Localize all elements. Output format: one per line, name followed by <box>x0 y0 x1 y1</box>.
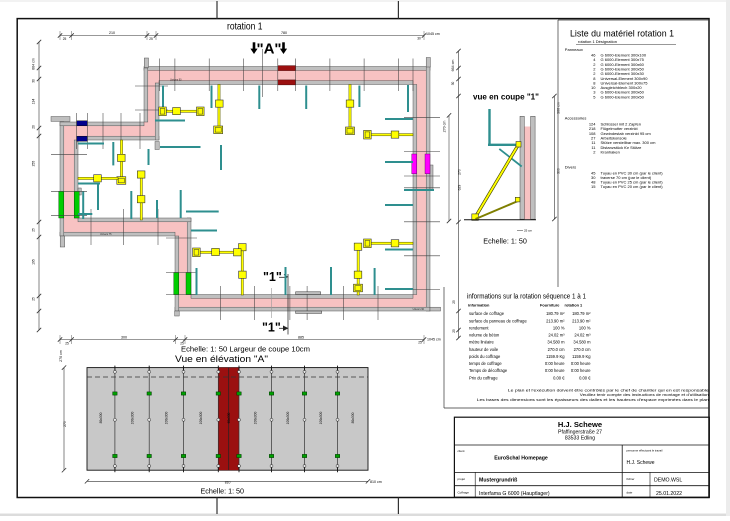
svg-text:180.79 m²: 180.79 m² <box>572 311 591 316</box>
svg-text:100x300: 100x300 <box>199 412 203 425</box>
svg-text:1045 cm: 1045 cm <box>426 32 440 36</box>
svg-text:270: 270 <box>63 421 67 427</box>
svg-text:information: information <box>468 303 490 308</box>
svg-text:885: 885 <box>298 335 304 339</box>
svg-text:270: 270 <box>458 169 462 175</box>
svg-text:270.0 cm: 270.0 cm <box>574 347 591 352</box>
svg-text:rendement: rendement <box>469 325 489 330</box>
svg-text:1159.9 Kg: 1159.9 Kg <box>546 354 565 359</box>
svg-text:25: 25 <box>452 329 456 333</box>
svg-text:Divers: Divers <box>565 165 576 170</box>
svg-text:0:00 heure: 0:00 heure <box>571 368 591 373</box>
svg-text:100x300: 100x300 <box>286 412 290 425</box>
svg-text:Mustergrundriß: Mustergrundriß <box>479 477 518 483</box>
svg-text:Temps de décoffrage: Temps de décoffrage <box>469 368 508 373</box>
svg-text:100x300: 100x300 <box>165 412 169 425</box>
svg-text:client: client <box>458 449 465 453</box>
svg-text:rotation 1: rotation 1 <box>565 303 584 308</box>
svg-text:195: 195 <box>32 259 36 265</box>
svg-text:rotation 1: rotation 1 <box>227 21 263 32</box>
svg-text:629: 629 <box>458 185 462 191</box>
svg-text:60x300: 60x300 <box>227 412 231 423</box>
svg-text:100x300: 100x300 <box>319 412 323 425</box>
svg-text:date: date <box>627 491 633 495</box>
svg-text:mètre linéaire: mètre linéaire <box>469 340 495 345</box>
svg-text:0.00 €: 0.00 € <box>553 375 565 380</box>
svg-text:Accessoires: Accessoires <box>565 115 587 120</box>
svg-text:270 cm: 270 cm <box>443 121 447 133</box>
svg-text:25: 25 <box>32 297 36 301</box>
svg-text:25: 25 <box>418 341 422 345</box>
svg-text:810 cm: 810 cm <box>370 480 382 484</box>
svg-text:24.02 m³: 24.02 m³ <box>574 333 591 338</box>
svg-text:fichier: fichier <box>627 477 635 481</box>
svg-text:Interfama G 6000 (Hauptlager): Interfama G 6000 (Hauptlager) <box>479 491 550 497</box>
svg-text:H.J. Schewe: H.J. Schewe <box>627 460 655 466</box>
svg-text:25: 25 <box>149 37 153 41</box>
svg-text:20: 20 <box>32 125 36 129</box>
svg-text:25: 25 <box>452 300 456 304</box>
svg-text:270.0 cm: 270.0 cm <box>548 347 565 352</box>
svg-text:180.79 m²: 180.79 m² <box>546 311 565 316</box>
svg-text:25 cm: 25 cm <box>524 228 533 232</box>
svg-text:poids du coffrage: poids du coffrage <box>469 354 501 359</box>
svg-text:0:00 heure: 0:00 heure <box>545 368 565 373</box>
svg-text:25: 25 <box>180 342 184 346</box>
svg-text:projet: projet <box>458 477 466 481</box>
svg-text:Univers 90: Univers 90 <box>170 79 182 82</box>
svg-text:Coffrage: Coffrage <box>458 491 470 495</box>
svg-text:Vue en élévation "A": Vue en élévation "A" <box>175 354 268 364</box>
svg-text:15: 15 <box>591 184 596 189</box>
svg-text:255: 255 <box>32 161 36 167</box>
svg-text:0:00 heure: 0:00 heure <box>545 361 565 366</box>
svg-text:25: 25 <box>63 37 67 41</box>
svg-text:Fourniture: Fourniture <box>540 303 560 308</box>
svg-text:24.02 m³: 24.02 m³ <box>548 333 565 338</box>
svg-text:34.580 m: 34.580 m <box>547 340 565 345</box>
svg-text:Kranhaken: Kranhaken <box>601 149 620 154</box>
svg-text:0.00 €: 0.00 € <box>579 375 591 380</box>
svg-text:213.90 m²: 213.90 m² <box>572 318 591 323</box>
svg-text:EuroSchal Homepage: EuroSchal Homepage <box>494 455 548 461</box>
svg-text:"1": "1" <box>262 321 281 335</box>
svg-text:30: 30 <box>417 37 421 41</box>
svg-text:100 %: 100 % <box>579 325 591 330</box>
svg-text:DEMO.WSL: DEMO.WSL <box>654 477 682 483</box>
svg-text:surface de coffrage: surface de coffrage <box>469 311 505 316</box>
svg-text:1159.9 Kg: 1159.9 Kg <box>572 354 591 359</box>
svg-text:vue en coupe "1": vue en coupe "1" <box>473 92 539 102</box>
svg-text:Univers 75: Univers 75 <box>100 233 112 236</box>
svg-text:25: 25 <box>65 342 69 346</box>
svg-text:Prix du coffrage: Prix du coffrage <box>469 375 498 380</box>
svg-text:Tuyau en PVC 20 cm (par le cli: Tuyau en PVC 20 cm (par le client) <box>601 184 664 189</box>
svg-text:Echelle: 1: 50: Echelle: 1: 50 <box>201 487 245 496</box>
svg-text:210: 210 <box>109 31 115 35</box>
svg-text:80x300: 80x300 <box>99 412 103 423</box>
svg-text:H.J. Schewe: H.J. Schewe <box>558 420 602 429</box>
svg-text:83533 Edling: 83533 Edling <box>565 435 595 441</box>
svg-text:300: 300 <box>556 168 560 174</box>
svg-text:30: 30 <box>451 82 455 86</box>
svg-text:30: 30 <box>32 79 36 83</box>
svg-text:G 6000-Element 300x50: G 6000-Element 300x50 <box>601 94 645 99</box>
svg-text:informations sur la rotation: informations sur la rotation séquence 1 … <box>467 291 586 300</box>
svg-text:100x300: 100x300 <box>253 412 257 425</box>
svg-text:"A": "A" <box>256 40 281 57</box>
svg-text:Echelle: 1: 50 Largeur de cou: Echelle: 1: 50 Largeur de coupe 10cm <box>181 347 310 354</box>
svg-text:300: 300 <box>121 335 127 339</box>
svg-text:100 %: 100 % <box>553 325 565 330</box>
svg-text:213.90 m²: 213.90 m² <box>546 318 565 323</box>
svg-text:Liste du matériel rotation 1: Liste du matériel rotation 1 <box>570 29 674 39</box>
svg-text:0:00 heure: 0:00 heure <box>571 361 591 366</box>
svg-text:hauteur de voile: hauteur de voile <box>469 347 499 352</box>
svg-text:270 cm: 270 cm <box>59 350 63 362</box>
svg-text:134: 134 <box>32 99 36 105</box>
svg-text:volume de béton: volume de béton <box>469 333 500 338</box>
svg-text:temps de coffrage: temps de coffrage <box>469 361 502 366</box>
svg-text:80x300: 80x300 <box>351 412 355 423</box>
svg-text:810: 810 <box>225 481 231 485</box>
svg-text:780: 780 <box>281 31 287 35</box>
svg-text:Panneaux: Panneaux <box>565 47 583 52</box>
svg-text:Echelle: 1: 50: Echelle: 1: 50 <box>483 237 527 246</box>
svg-text:664 cm: 664 cm <box>32 58 36 70</box>
svg-text:1045 cm: 1045 cm <box>427 338 441 342</box>
svg-text:664 cm: 664 cm <box>451 60 455 72</box>
svg-text:personne effectuant le travail: personne effectuant le travail <box>627 449 663 453</box>
svg-text:300 cm: 300 cm <box>556 102 560 114</box>
svg-text:rotation 1 Désignation: rotation 1 Désignation <box>578 39 617 44</box>
svg-text:25.01.2022: 25.01.2022 <box>656 491 682 497</box>
svg-text:34.580 m: 34.580 m <box>573 340 591 345</box>
svg-text:100x300: 100x300 <box>130 412 134 425</box>
svg-text:25: 25 <box>32 228 36 232</box>
svg-text:Les bases des dimensions sont: Les bases des dimensions sont les épaiss… <box>477 397 709 402</box>
svg-text:surface du panneau de coffrage: surface du panneau de coffrage <box>469 318 527 323</box>
svg-text:Univers 90: Univers 90 <box>413 308 425 311</box>
